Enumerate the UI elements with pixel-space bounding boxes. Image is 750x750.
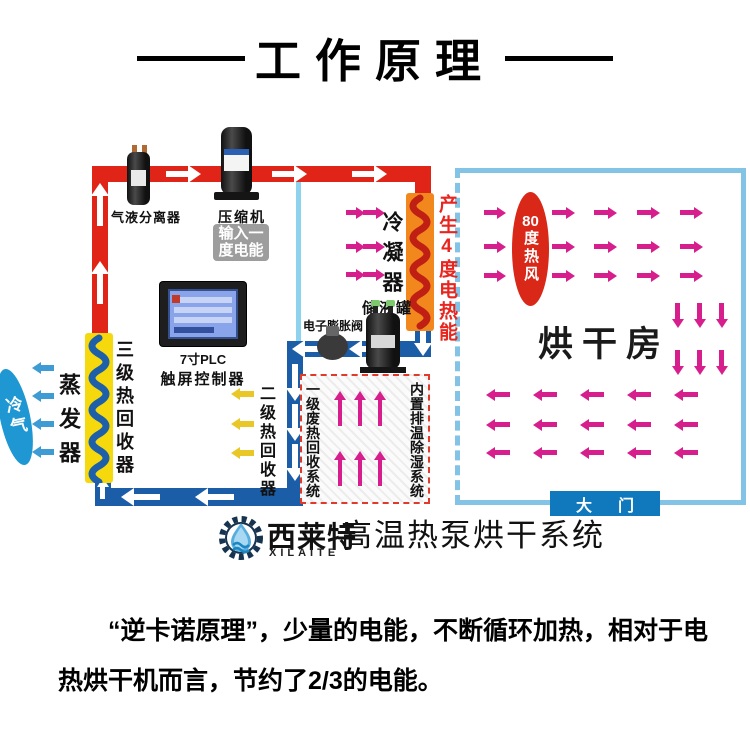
flow-arrow-icon xyxy=(420,331,426,343)
waste-heat-box: 一级废热回收系统 内置排温除湿系统 xyxy=(300,374,430,504)
arrow-left-icon xyxy=(636,450,651,455)
hot-wind-unit: 度热风 xyxy=(523,230,538,284)
arrow-left-icon xyxy=(542,422,557,427)
arrow-right-icon xyxy=(484,273,497,278)
arrow-left-icon xyxy=(41,449,54,455)
drying-room-label: 烘干房 xyxy=(538,316,670,367)
arrow-left-icon xyxy=(683,422,698,427)
recovery3-label: 三级热回收器 xyxy=(115,340,133,478)
description-line2: 热烘干机而言，节约了2/3的电能。 xyxy=(58,656,708,706)
arrow-down-icon xyxy=(697,303,702,319)
arrow-right-icon xyxy=(594,244,608,249)
arrow-right-icon xyxy=(346,272,356,277)
brand-name-en: XILAITE xyxy=(269,547,339,559)
arrow-right-icon xyxy=(680,244,694,249)
storage-tank-device xyxy=(366,313,400,369)
arrow-right-icon xyxy=(484,210,497,215)
input-power-line1: 输入一 xyxy=(216,226,266,243)
flow-arrow-icon xyxy=(292,364,298,388)
title-line-left xyxy=(137,56,245,61)
arrow-left-icon xyxy=(589,450,604,455)
arrow-right-icon xyxy=(637,273,651,278)
arrow-down-icon xyxy=(719,350,724,366)
arrow-right-icon xyxy=(484,244,497,249)
hot-wind-badge: 80 度热风 xyxy=(512,192,549,306)
flow-arrow-icon xyxy=(134,494,160,500)
flow-arrow-icon xyxy=(292,444,298,468)
arrow-right-icon xyxy=(346,244,356,249)
arrow-left-icon xyxy=(495,392,510,397)
plc-screen-chip xyxy=(172,295,180,303)
waste-recovery-label: 一级废热回收系统 xyxy=(306,382,320,498)
plc-screen-row xyxy=(174,297,232,303)
arrow-left-icon xyxy=(240,391,254,397)
plc-controller-device xyxy=(160,282,246,346)
arrow-left-icon xyxy=(240,421,254,427)
arrow-down-icon xyxy=(719,303,724,319)
plc-label: 7寸PLC 触屏控制器 xyxy=(140,349,266,389)
arrow-down-icon xyxy=(675,350,680,366)
arrow-right-icon xyxy=(637,244,651,249)
compressor-sticker-band xyxy=(224,149,249,155)
description-paragraph: “逆卡诺原理”，少量的电能，不断循环加热，相对于电 热烘干机而言，节约了2/3的… xyxy=(58,606,708,706)
flow-arrow-icon xyxy=(272,171,294,177)
arrow-left-icon xyxy=(41,393,54,399)
plc-label-line1: 7寸PLC xyxy=(140,349,266,368)
arrow-left-icon xyxy=(41,421,54,427)
arrow-up-icon xyxy=(358,460,362,486)
plc-screen xyxy=(168,289,238,339)
compressor-sticker xyxy=(224,149,249,171)
arrow-right-icon xyxy=(680,273,694,278)
hot-wind-value: 80 xyxy=(522,214,539,231)
compressor-base xyxy=(214,192,259,200)
arrow-up-icon xyxy=(338,400,342,426)
valve-head xyxy=(326,326,339,336)
arrow-right-icon xyxy=(363,244,376,249)
arrow-left-icon xyxy=(495,450,510,455)
arrow-left-icon xyxy=(589,392,604,397)
door-label: 大门 xyxy=(550,491,660,516)
title-line-right xyxy=(505,56,613,61)
gas-liquid-separator-device xyxy=(127,152,150,205)
recovery-coil-tube xyxy=(85,333,113,483)
arrow-left-icon xyxy=(636,422,651,427)
arrow-left-icon xyxy=(495,422,510,427)
system-name: 高温热泵烘干系统 xyxy=(341,510,605,555)
arrow-right-icon xyxy=(594,273,608,278)
title-row: 工作原理 xyxy=(140,28,610,88)
arrow-up-icon xyxy=(358,400,362,426)
plc-screen-row xyxy=(174,327,214,333)
arrow-left-icon xyxy=(683,392,698,397)
arrow-left-icon xyxy=(683,450,698,455)
arrow-left-icon xyxy=(542,392,557,397)
plc-screen-row xyxy=(174,317,232,323)
heat-output-label: 产生4度电热能 xyxy=(437,194,456,343)
flow-arrow-icon xyxy=(97,196,103,226)
input-power-line2: 度电能 xyxy=(216,243,266,260)
compressor-device xyxy=(221,127,252,195)
condenser-label: 冷凝器 xyxy=(381,211,402,301)
flow-arrow-icon xyxy=(100,487,105,499)
separator-label: 气液分离器 xyxy=(111,207,181,226)
flow-arrow-icon xyxy=(352,171,374,177)
flow-arrow-icon xyxy=(97,274,103,304)
arrow-right-icon xyxy=(363,210,376,215)
tank-sticker xyxy=(371,335,395,348)
arrow-left-icon xyxy=(589,422,604,427)
evaporator-label: 蒸发器 xyxy=(57,373,79,475)
plc-screen-row xyxy=(174,307,232,313)
plc-label-line2: 触屏控制器 xyxy=(140,368,266,389)
arrow-up-icon xyxy=(338,460,342,486)
arrow-down-icon xyxy=(675,303,680,319)
cold-air-label: 冷气 xyxy=(2,395,27,440)
arrow-up-icon xyxy=(378,400,382,426)
flow-arrow-icon xyxy=(292,404,298,428)
flow-arrow-icon xyxy=(208,494,234,500)
arrow-right-icon xyxy=(552,210,566,215)
arrow-left-icon xyxy=(542,450,557,455)
drying-room-box: 80 度热风 烘干房 xyxy=(455,168,746,505)
arrow-left-icon xyxy=(240,450,254,456)
arrow-right-icon xyxy=(552,273,566,278)
dehumid-label: 内置排温除湿系统 xyxy=(410,382,424,498)
arrow-down-icon xyxy=(697,350,702,366)
arrow-right-icon xyxy=(594,210,608,215)
description-line1: “逆卡诺原理”，少量的电能，不断循环加热，相对于电 xyxy=(58,606,708,656)
gear-waterdrop-icon xyxy=(219,511,267,565)
arrow-up-icon xyxy=(378,460,382,486)
recovery-coil xyxy=(85,333,113,483)
arrow-right-icon xyxy=(346,210,356,215)
arrow-left-icon xyxy=(41,365,54,371)
working-principle-diagram: 工作原理 80 度热风 烘干房 xyxy=(0,0,750,750)
arrow-right-icon xyxy=(363,272,376,277)
arrow-right-icon xyxy=(637,210,651,215)
expansion-valve-device xyxy=(317,333,348,360)
brand-logo xyxy=(219,511,267,570)
arrow-right-icon xyxy=(552,244,566,249)
recovery2-label: 二级热回收器 xyxy=(257,385,273,499)
separator-sticker xyxy=(131,170,146,186)
arrow-right-icon xyxy=(680,210,694,215)
flow-arrow-icon xyxy=(166,171,188,177)
input-power-tag: 输入一 度电能 xyxy=(213,224,269,261)
page-title: 工作原理 xyxy=(255,25,495,91)
tank-base xyxy=(360,367,406,373)
arrow-left-icon xyxy=(636,392,651,397)
